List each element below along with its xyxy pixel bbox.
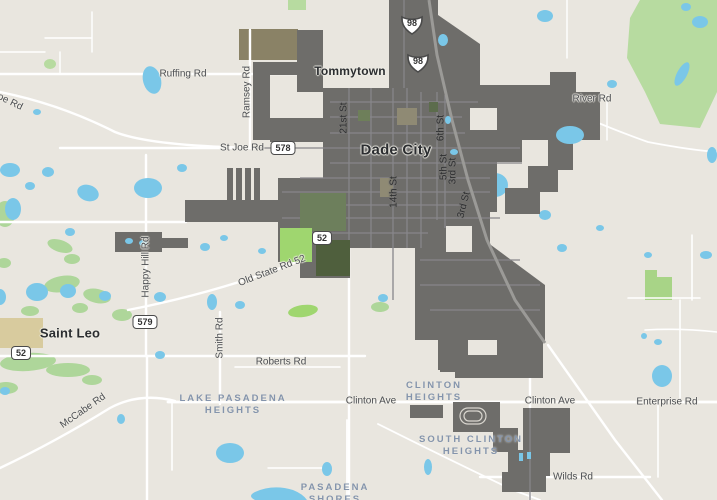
sr579-shield: 579 (132, 315, 157, 329)
sr52-shield-east: 52 (312, 231, 332, 245)
us98-shield-icon-north: 98 (400, 14, 424, 36)
outside-roads (0, 0, 717, 500)
sr578-shield: 578 (270, 141, 295, 155)
us98-shield-icon-south: 98 (406, 52, 430, 74)
sr52-shield-west: 52 (11, 346, 31, 360)
us98-shield-text: 98 (406, 56, 430, 66)
us98-shield-text: 98 (400, 18, 424, 28)
map-viewport[interactable]: Dade City Tommytown Saint Leo Ruffing Rd… (0, 0, 717, 500)
map-canvas (0, 0, 717, 500)
lakes (0, 3, 717, 500)
